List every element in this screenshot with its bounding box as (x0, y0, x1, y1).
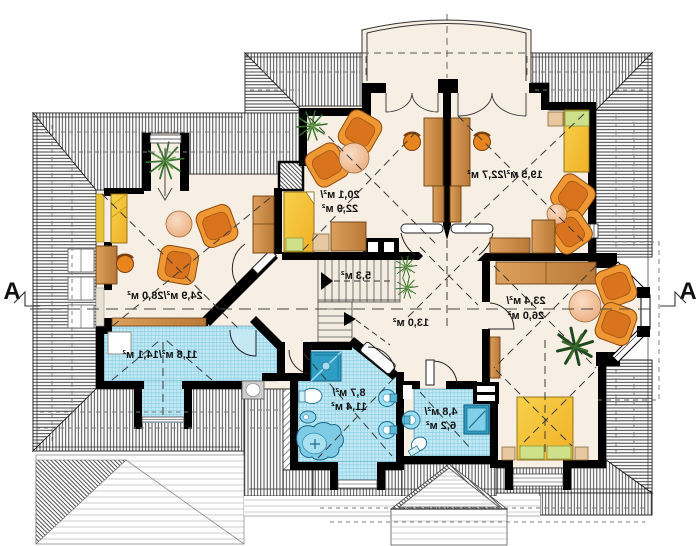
svg-text:6,2 м²: 6,2 м² (426, 420, 456, 432)
svg-text:26,0 м²: 26,0 м² (508, 310, 545, 322)
svg-text:8,7 м²/: 8,7 м²/ (332, 387, 365, 399)
svg-text:11,8 м²/14,1 м²: 11,8 м²/14,1 м² (122, 349, 197, 361)
svg-text:A: A (3, 278, 20, 305)
svg-text:24,9 м²/28,0 м²: 24,9 м²/28,0 м² (127, 290, 203, 302)
svg-text:11,4 м²: 11,4 м² (331, 401, 367, 413)
svg-text:A: A (679, 278, 696, 305)
svg-text:19,5 м²/22,7 м²: 19,5 м²/22,7 м² (467, 169, 543, 181)
svg-text:22,9 м²: 22,9 м² (322, 203, 359, 215)
svg-text:20,1 м²/: 20,1 м²/ (320, 189, 359, 201)
svg-text:5,3 м²: 5,3 м² (341, 270, 371, 282)
svg-text:4,8 м²/: 4,8 м²/ (424, 406, 457, 418)
svg-text:23,4 м²/: 23,4 м²/ (506, 295, 545, 307)
svg-text:13,0 м²: 13,0 м² (393, 317, 430, 329)
